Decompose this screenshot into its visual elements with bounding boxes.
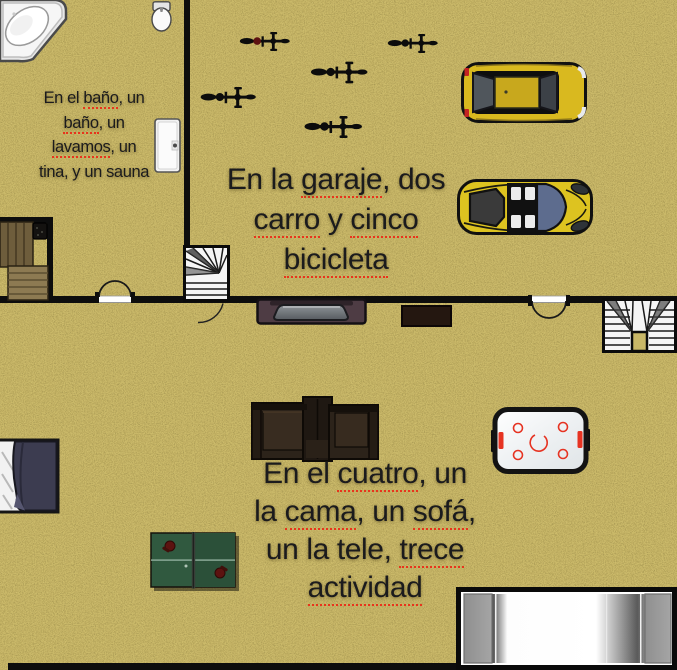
- sauna-heater-icon: [33, 223, 47, 239]
- misspelled-word: cinco: [350, 203, 418, 238]
- misspelled-word: lavamos: [52, 138, 111, 158]
- misspelled-word: cama: [285, 495, 357, 530]
- bicycle-icon[interactable]: [303, 115, 364, 139]
- bicycle-icon[interactable]: [198, 86, 259, 109]
- u-turn-stairs-icon[interactable]: [602, 298, 677, 353]
- sedan-car-icon[interactable]: [460, 60, 589, 125]
- sofa-icon[interactable]: [251, 396, 379, 462]
- sauna-bench-icon[interactable]: [0, 221, 50, 302]
- toilet-icon[interactable]: [149, 1, 174, 32]
- misspelled-word: baño: [63, 114, 98, 134]
- room-label: En el cuatro, unla cama, un sofá,un la t…: [222, 455, 508, 607]
- bathroom-label: En el baño, unbaño, unlavamos, untina, y…: [8, 86, 180, 184]
- misspelled-word: trece: [399, 533, 464, 568]
- misspelled-word: baño: [83, 89, 118, 109]
- bicycle-icon[interactable]: [310, 60, 369, 85]
- double-door-icon[interactable]: [528, 294, 570, 322]
- bathtub-icon[interactable]: [0, 0, 70, 64]
- tv-icon[interactable]: [256, 298, 367, 325]
- bicycle-icon[interactable]: [387, 32, 439, 55]
- misspelled-word: cuatro: [337, 457, 418, 492]
- bed-icon[interactable]: [0, 438, 60, 514]
- misspelled-word: carro: [254, 203, 320, 238]
- cabinet-icon[interactable]: [401, 305, 452, 327]
- double-door-icon[interactable]: [95, 278, 135, 304]
- garage-label: En la garaje, doscarro y cincobicicleta: [192, 160, 480, 280]
- misspelled-word: garaje: [301, 163, 382, 198]
- misspelled-word: actividad: [308, 571, 423, 606]
- floor-plan-canvas: En el baño, unbaño, unlavamos, untina, y…: [0, 0, 677, 670]
- bicycle-icon[interactable]: [239, 29, 291, 54]
- misspelled-word: sofá: [413, 495, 468, 530]
- door-swing-icon[interactable]: [197, 303, 225, 324]
- misspelled-word: bicicleta: [284, 243, 389, 278]
